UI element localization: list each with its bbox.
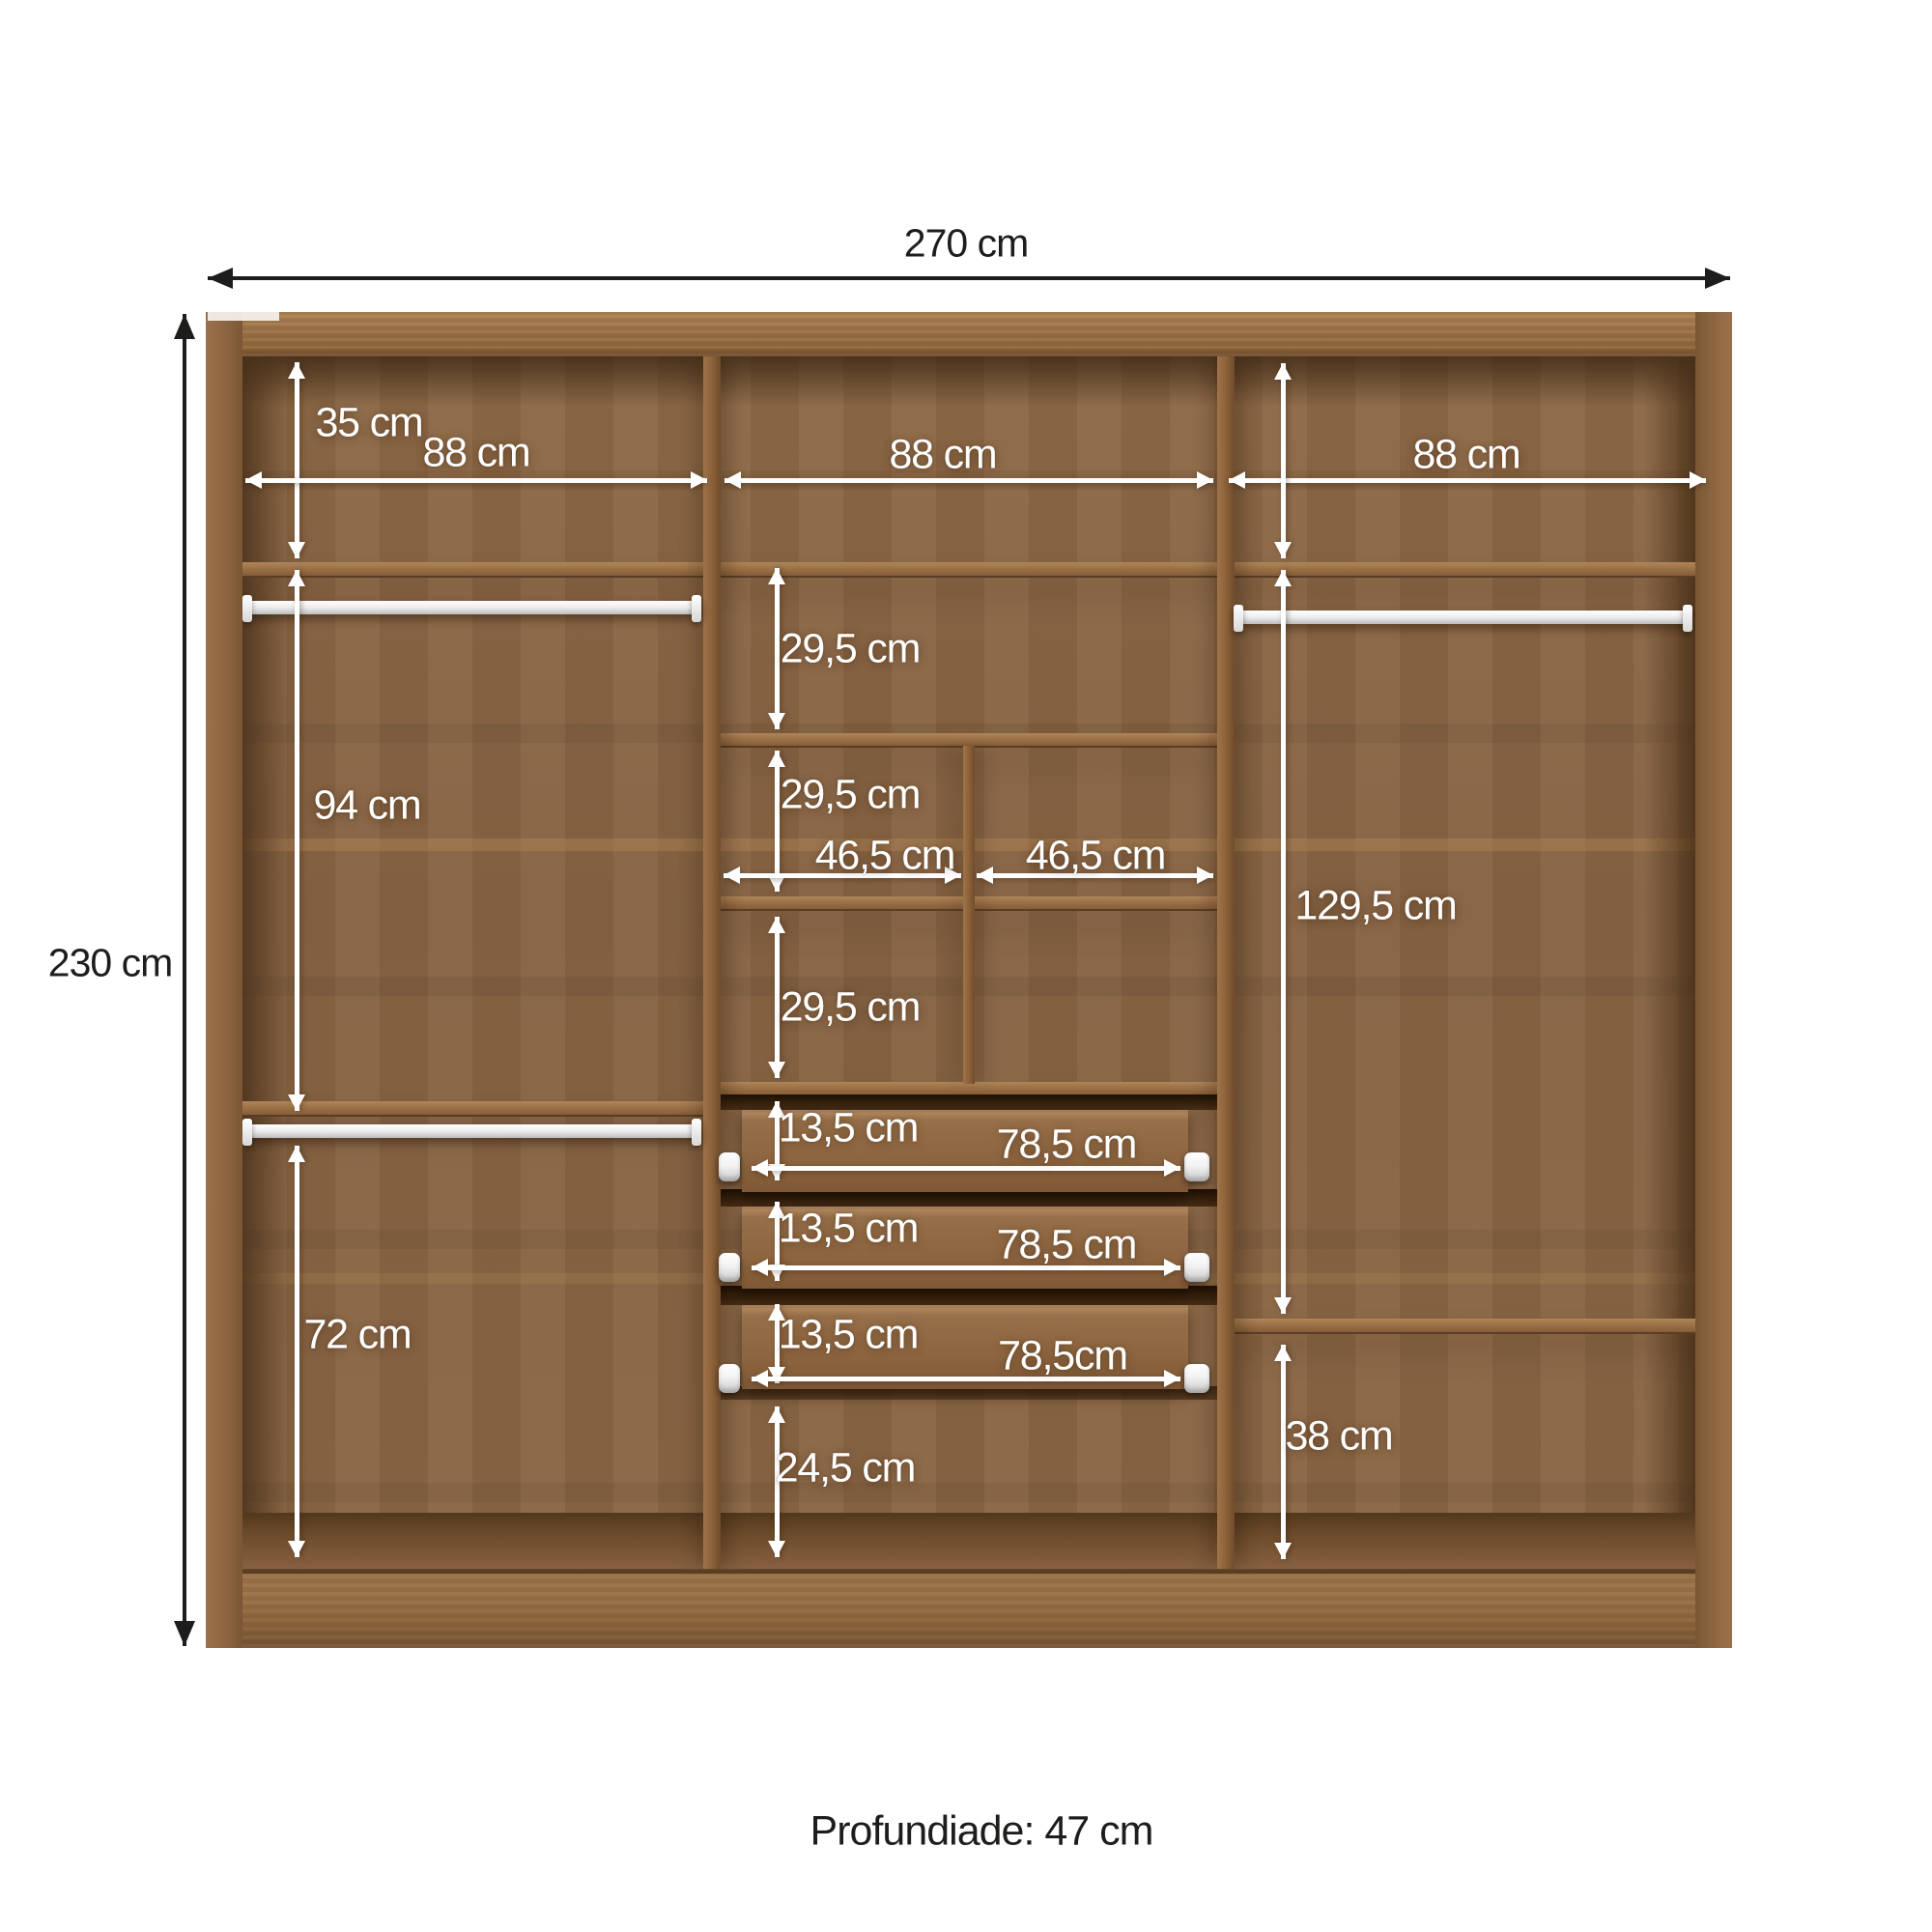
drawer-slide-roller xyxy=(1184,1364,1209,1393)
rod-bracket xyxy=(242,1119,252,1146)
overall-height-dim-line xyxy=(183,314,186,1646)
col-width-label-1: 88 cm xyxy=(422,430,529,477)
middle-cubby1-label: 29,5 cm xyxy=(781,626,921,673)
drawer-slide-roller xyxy=(1184,1253,1209,1282)
base-panel xyxy=(242,1569,1695,1648)
left-upper-hanging-rod xyxy=(245,601,701,614)
left-lower-label: 72 cm xyxy=(303,1312,411,1359)
drawer-slide-roller xyxy=(719,1253,740,1282)
left-lower-dim-line xyxy=(295,1146,299,1557)
half-width-label-1: 46,5 cm xyxy=(815,833,955,880)
right-upper-label: 129,5 cm xyxy=(1294,883,1456,930)
left-lower-hanging-rod xyxy=(245,1124,701,1138)
col-width-dim-line-1 xyxy=(245,478,707,483)
drawer-slide-roller xyxy=(719,1152,740,1181)
left-upper-dim-line xyxy=(295,570,299,1111)
drawer-width-label-1: 78,5 cm xyxy=(997,1122,1137,1169)
drawer-slide-roller xyxy=(719,1364,740,1393)
col-width-dim-line-3 xyxy=(1229,478,1706,483)
rod-bracket xyxy=(692,595,701,622)
rod-bracket xyxy=(1234,605,1243,632)
interior-floor xyxy=(242,1513,1695,1569)
middle-cubby3-label: 29,5 cm xyxy=(781,984,921,1032)
right-inner-face xyxy=(1643,356,1695,1569)
rod-bracket xyxy=(242,595,252,622)
right-column-shelf xyxy=(1235,1319,1695,1334)
right-side-panel xyxy=(1695,312,1732,1648)
drawer-height-label-1: 13,5 cm xyxy=(779,1105,919,1152)
cubby-mid-divider xyxy=(963,746,975,1084)
overall-height-label: 230 cm xyxy=(48,941,172,986)
rod-bracket xyxy=(692,1119,701,1146)
overall-width-dim-line xyxy=(208,276,1730,280)
crown-highlight xyxy=(208,312,279,321)
drawer-height-label-3: 13,5 cm xyxy=(779,1312,919,1359)
middle-cubby2-label: 29,5 cm xyxy=(781,772,921,819)
divider-middle-right xyxy=(1217,355,1235,1569)
crown-top-panel xyxy=(206,312,1732,356)
left-column-shelf xyxy=(242,1101,703,1117)
drawer-width-label-3: 78,5cm xyxy=(998,1333,1127,1380)
middle-cubby2-dim-line xyxy=(775,751,780,892)
left-side-panel xyxy=(206,312,242,1648)
drawer-height-label-2: 13,5 cm xyxy=(779,1206,919,1253)
drawer-gap xyxy=(721,1286,1217,1305)
col-width-label-2: 88 cm xyxy=(889,432,996,479)
left-upper-label: 94 cm xyxy=(313,782,420,830)
rod-bracket xyxy=(1683,605,1692,632)
middle-cubby1-dim-line xyxy=(775,568,780,729)
right-upper-dim-line xyxy=(1281,570,1286,1314)
interior-top-shadow xyxy=(242,356,1695,407)
wardrobe-dimension-diagram: 270 cm 230 cm 35 cm 94 cm 72 cm 88 cm 88… xyxy=(0,0,1932,1932)
middle-bottom-label: 24,5 cm xyxy=(776,1445,916,1492)
top-row-height-label: 35 cm xyxy=(315,400,422,447)
drawer-width-label-2: 78,5 cm xyxy=(997,1222,1137,1269)
right-lower-label: 38 cm xyxy=(1285,1413,1392,1461)
overall-width-label: 270 cm xyxy=(904,221,1028,267)
col-width-label-3: 88 cm xyxy=(1412,432,1520,479)
drawer-slide-roller xyxy=(1184,1152,1209,1181)
right-top-row-dim-line xyxy=(1281,363,1286,558)
right-hanging-rod xyxy=(1236,611,1690,624)
half-width-label-2: 46,5 cm xyxy=(1026,833,1166,880)
col-width-dim-line-2 xyxy=(724,478,1213,483)
middle-cubby3-dim-line xyxy=(775,917,780,1078)
left-inner-face xyxy=(242,356,295,1569)
depth-label: Profundiade: 47 cm xyxy=(810,1808,1153,1856)
top-row-height-dim-line xyxy=(295,362,299,558)
top-shelf xyxy=(242,562,1695,578)
